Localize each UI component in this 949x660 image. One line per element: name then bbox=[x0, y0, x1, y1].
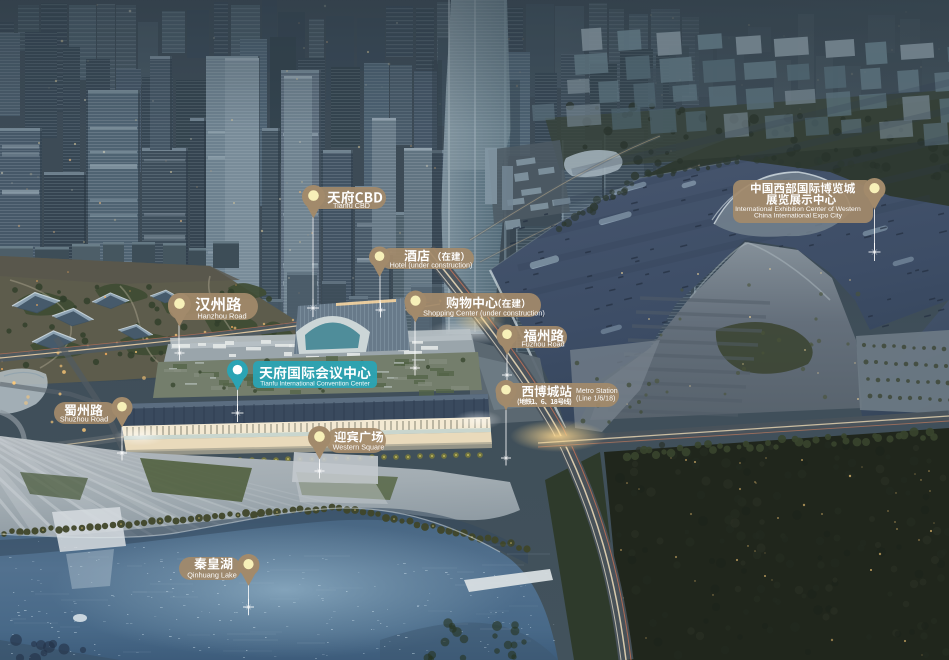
svg-text:China International Expo City: China International Expo City bbox=[754, 213, 843, 220]
svg-text:(Line 1/6/18): (Line 1/6/18) bbox=[576, 396, 615, 403]
svg-text:Tianfu CBD: Tianfu CBD bbox=[333, 201, 370, 210]
svg-text:Metro Station: Metro Station bbox=[576, 388, 618, 395]
svg-text:Shopping Center (under constru: Shopping Center (under construction) bbox=[423, 309, 545, 318]
svg-text:Hanzhou Road: Hanzhou Road bbox=[197, 311, 246, 320]
svg-text:Western Square: Western Square bbox=[333, 443, 385, 452]
svg-text:Tianfu International Conventio: Tianfu International Convention Center bbox=[260, 381, 370, 388]
svg-text:Fuzhou Road: Fuzhou Road bbox=[521, 340, 564, 349]
svg-text:Hotel (under construction): Hotel (under construction) bbox=[390, 261, 473, 270]
svg-text:Shuzhou Road: Shuzhou Road bbox=[60, 415, 108, 424]
svg-text:Qinhuang Lake: Qinhuang Lake bbox=[187, 570, 237, 579]
